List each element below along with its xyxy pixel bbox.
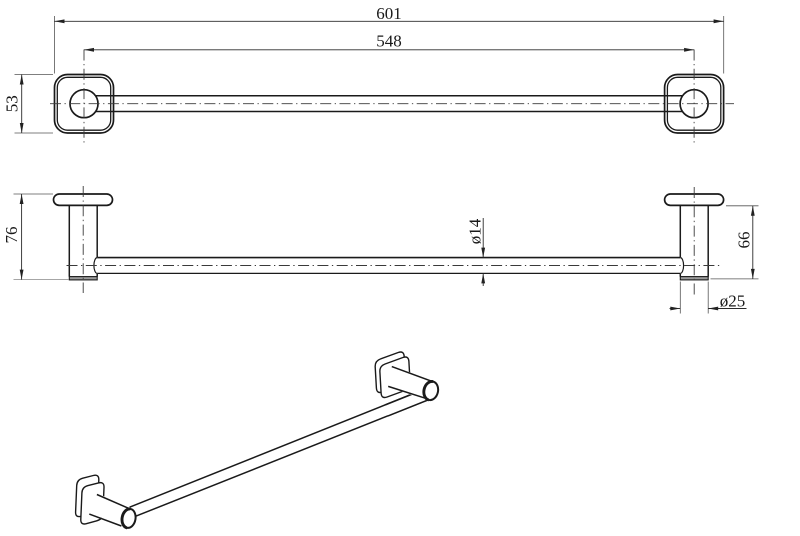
svg-text:ø25: ø25 [720, 291, 746, 310]
svg-text:76: 76 [2, 227, 21, 244]
svg-text:53: 53 [3, 95, 22, 112]
svg-text:66: 66 [735, 232, 754, 249]
svg-text:ø14: ø14 [465, 218, 484, 244]
svg-text:601: 601 [376, 4, 402, 23]
svg-text:548: 548 [376, 32, 402, 51]
